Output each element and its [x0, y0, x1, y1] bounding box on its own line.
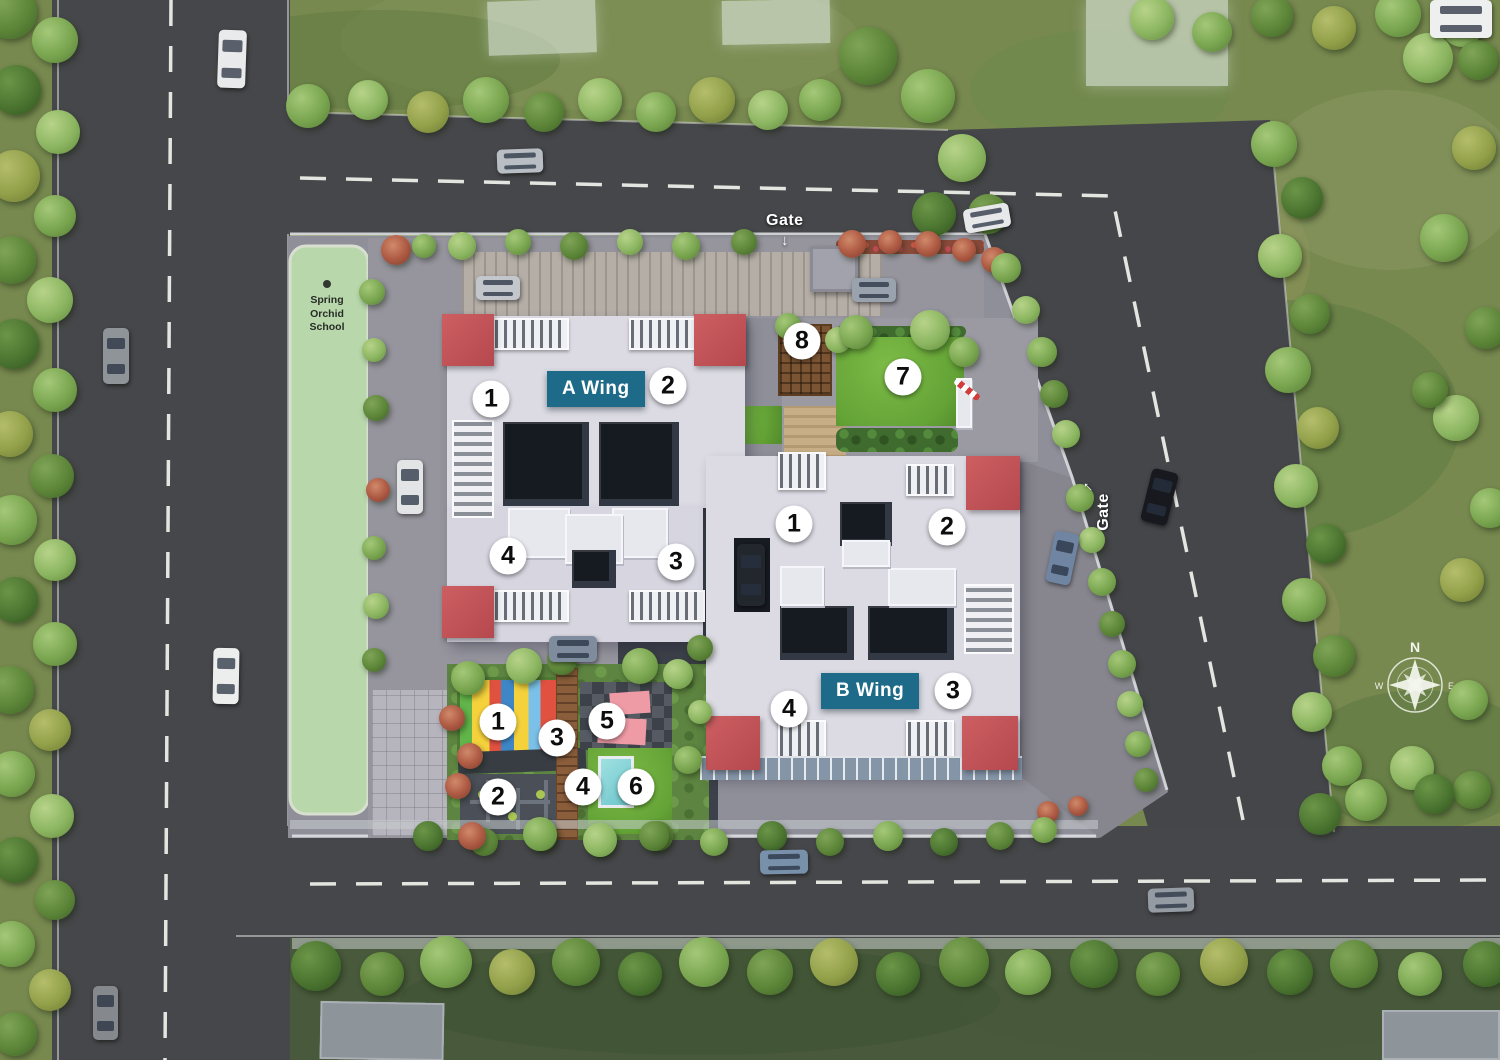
wing-a-label: A Wing — [547, 371, 645, 407]
marker-amenities-4: 4 — [565, 769, 602, 806]
marker-wing_b-3: 3 — [935, 673, 972, 710]
marker-amenities-8: 8 — [784, 323, 821, 360]
marker-amenities-6: 6 — [618, 769, 655, 806]
marker-amenities-3: 3 — [539, 720, 576, 757]
school-label-line1: Spring — [294, 294, 360, 308]
marker-wing_a-1: 1 — [473, 381, 510, 418]
marker-wing_b-4: 4 — [771, 691, 808, 728]
gate-north-label: Gate — [766, 212, 804, 230]
marker-amenities-7: 7 — [885, 359, 922, 396]
marker-wing_a-3: 3 — [658, 544, 695, 581]
school-label-line3: School — [294, 321, 360, 335]
gate-east-label: Gate — [1095, 493, 1113, 531]
marker-amenities-1: 1 — [480, 704, 517, 741]
marker-wing_b-1: 1 — [776, 506, 813, 543]
school-label: Spring Orchid School — [294, 294, 360, 335]
marker-amenities-5: 5 — [589, 703, 626, 740]
marker-wing_a-2: 2 — [650, 368, 687, 405]
marker-amenities-2: 2 — [480, 779, 517, 816]
site-plan-canvas: N W E Spring Orchid School A Wing B Wing… — [0, 0, 1500, 1060]
wing-b-label: B Wing — [821, 673, 919, 709]
markers-layer: 1234123412345678 — [0, 0, 1500, 1060]
marker-wing_b-2: 2 — [929, 509, 966, 546]
gate-north-arrow-icon: ↓ — [781, 232, 789, 249]
marker-wing_a-4: 4 — [490, 538, 527, 575]
school-label-line2: Orchid — [294, 308, 360, 322]
